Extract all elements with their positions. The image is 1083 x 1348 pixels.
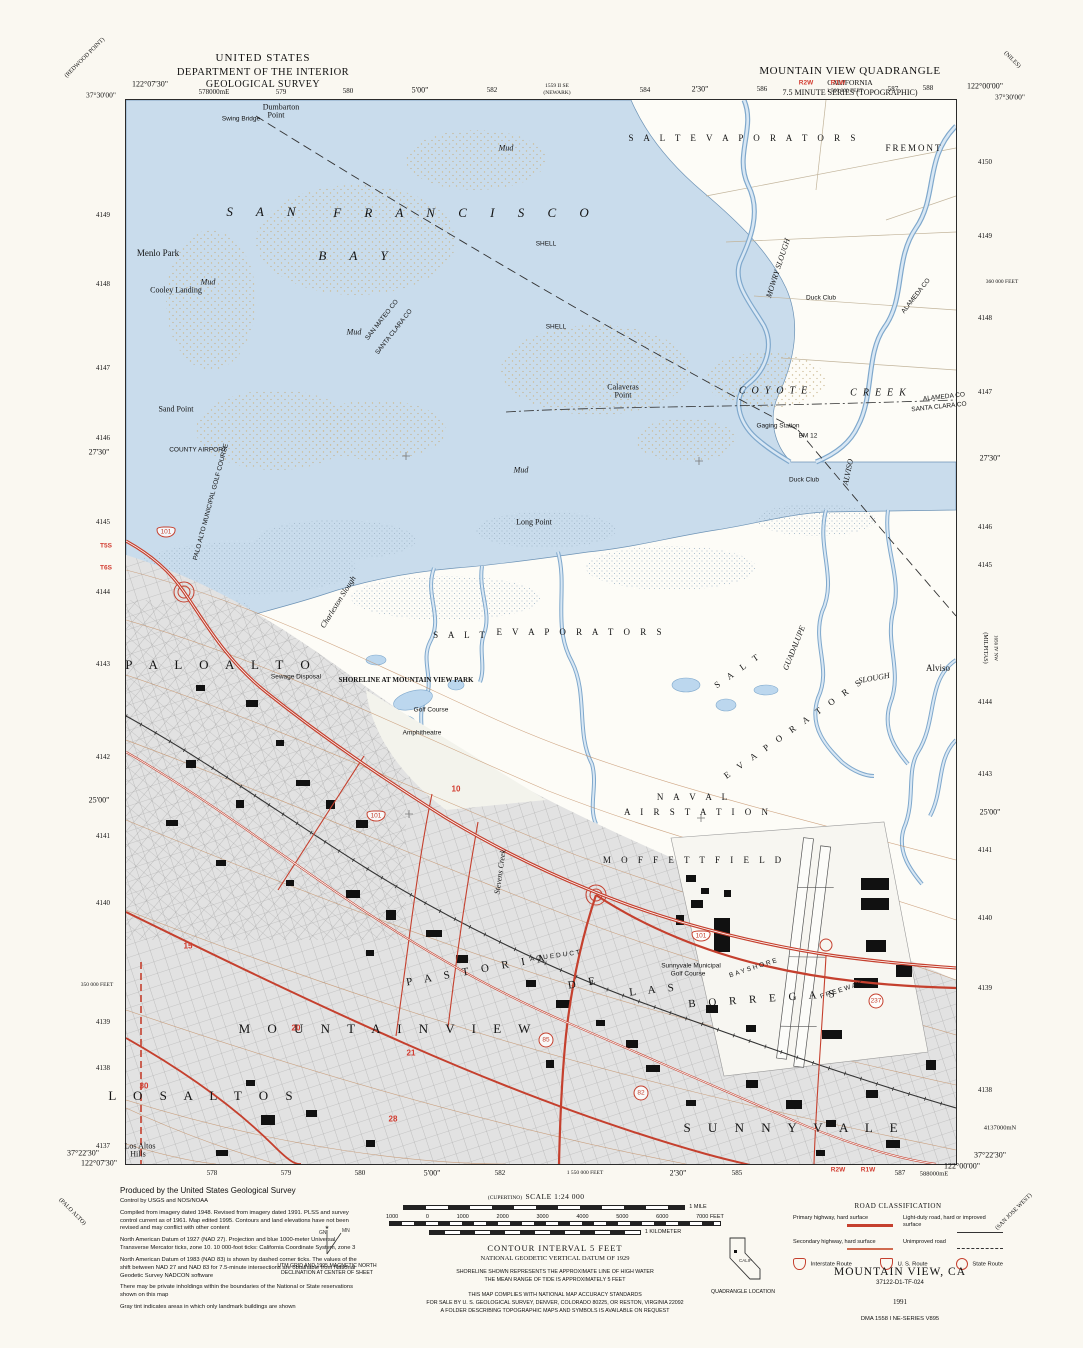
margin-label: 4138 [978, 1086, 992, 1094]
margin-label: 4139 [96, 1018, 110, 1026]
folder-note: A FOLDER DESCRIBING TOPOGRAPHIC MAPS AND… [385, 1308, 725, 1316]
map-label: S A L T [433, 630, 489, 640]
margin-label: 4140 [978, 914, 992, 922]
margin-label: 4140 [96, 899, 110, 907]
map-label: E V A P O R A T O R S [722, 675, 866, 780]
map-label: Hills [130, 1150, 146, 1159]
header-line1: UNITED STATES [128, 52, 398, 66]
map-label: Alviso [926, 663, 950, 673]
header-line3: GEOLOGICAL SURVEY [128, 79, 398, 92]
credit-note: There may be private inholdings within t… [120, 1284, 360, 1300]
section-number: 10 [452, 785, 461, 794]
margin-label: 4143 [978, 770, 992, 778]
margin-label: 588000mE [920, 1171, 949, 1178]
margin-label: 122°00'00" [944, 1162, 980, 1171]
margin-label: 582 [487, 86, 498, 94]
feet-tick-label: 7000 FEET [696, 1214, 724, 1220]
mile-scale-bar [403, 1205, 685, 1210]
quadrangle-location-label: QUADRANGLE LOCATION [698, 1289, 788, 1295]
margin-label: 4142 [96, 753, 110, 761]
feet-tick-labels: 100001000200030004000500060007000 FEET [386, 1214, 724, 1220]
declination-diagram: ★ GN MN UTM GRID AND 1995 MAGNETIC NORTH… [272, 1224, 382, 1278]
margin-label: 4144 [978, 698, 992, 706]
margin-label: 579 [281, 1169, 292, 1177]
margin-label: 4149 [96, 211, 110, 219]
map-label: Cooley Landing [150, 286, 202, 295]
map-label: Point [615, 391, 632, 400]
margin-label: 37°30'00" [995, 93, 1025, 102]
feet-tick-label: 5000 [616, 1214, 628, 1220]
section-number: 30 [140, 1082, 149, 1091]
margin-label: 588 [923, 84, 934, 92]
margin-label: 4147 [978, 388, 992, 396]
margin-label: 580 [343, 87, 354, 95]
route-shield: 85 [539, 1033, 554, 1048]
map-label: M O F F E T T F I E L D [603, 855, 785, 865]
map-label: GUADALUPE [781, 624, 807, 671]
section-number: 20 [292, 1024, 301, 1033]
legend-unimproved-road: Unimproved road [903, 1239, 1003, 1250]
mn-label: MN [342, 1228, 350, 1234]
declination-caption-2: DECLINATION AT CENTER OF SHEET [272, 1270, 382, 1277]
map-label: Duck Club [806, 295, 836, 302]
map-label: Menlo Park [137, 248, 179, 258]
quadrangle-location: CALIF QUADRANGLE LOCATION [698, 1236, 788, 1295]
feet-tick-label: 6000 [656, 1214, 668, 1220]
light-road-sample [957, 1232, 1003, 1233]
map-label: Sunnyvale Municipal [661, 963, 721, 970]
margin-label: 578000mE [199, 88, 230, 96]
margin-label: 4148 [978, 314, 992, 322]
margin-label: 122°07'30" [132, 80, 168, 89]
map-label: MOWRY SLOUGH [764, 237, 792, 299]
margin-label: 582 [495, 1169, 506, 1177]
map-label: S U N N Y V A L E [683, 1120, 904, 1136]
map-label: Golf Course [414, 707, 449, 714]
map-label: Long Point [516, 518, 552, 527]
margin-label: R2W [799, 80, 813, 87]
margin-label: R2W [831, 1167, 845, 1174]
margin-label: 122°00'00" [967, 82, 1003, 91]
map-name: MOUNTAIN VIEW, CA [805, 1266, 995, 1278]
margin-label: R1W [861, 1167, 875, 1174]
margin-label: 584 [640, 86, 651, 94]
map-label: BAYSHORE [728, 957, 779, 980]
map-label: Sand Point [159, 405, 194, 414]
margin-label: 4144 [96, 588, 110, 596]
map-label: Mud [514, 466, 529, 475]
margin-label: T5S [100, 543, 112, 550]
margin-label: 585 [732, 1169, 743, 1177]
margin-label: 1 550 000 FEET [567, 1170, 604, 1176]
map-label: AQUEDUCT [530, 949, 583, 963]
map-sheet: UNITED STATES DEPARTMENT OF THE INTERIOR… [0, 0, 1083, 1348]
map-label: M O U N T A I N V I E W [239, 1021, 538, 1037]
margin-label: 4145 [96, 518, 110, 526]
map-label: Gaging Station [756, 423, 799, 430]
map-label: Stevens Creek [492, 849, 507, 895]
margin-label: 37°30'00" [86, 91, 116, 100]
map-label: L O S A L T O S [108, 1088, 299, 1104]
map-label: SHORELINE AT MOUNTAIN VIEW PARK [339, 676, 474, 684]
feet-tick-label: 0 [426, 1214, 429, 1220]
map-year: 1991 [805, 1298, 995, 1306]
margin-label: 586 [757, 85, 768, 93]
margin-label: (NEWARK) [543, 90, 570, 96]
margin-label: 1 560 000 FEET [827, 88, 864, 94]
california-outline-icon: CALIF [723, 1236, 763, 1282]
margin-label: 5'00" [412, 86, 429, 95]
secondary-road-sample [847, 1248, 893, 1250]
margin-label: 4141 [978, 846, 992, 854]
quad-title-state: CALIFORNIA [700, 78, 1000, 88]
quad-title-name: MOUNTAIN VIEW QUADRANGLE [700, 64, 1000, 78]
km-scale-bar [429, 1230, 641, 1235]
map-label: CREEK [850, 388, 912, 399]
map-label: Mud [201, 278, 216, 287]
credit-note: Gray tint indicates areas in which only … [120, 1304, 360, 1312]
margin-label: 587 [895, 1169, 906, 1177]
legend-secondary-highway: Secondary highway, hard surface [793, 1239, 893, 1250]
margin-label: 580 [355, 1169, 366, 1177]
margin-label: 4138 [96, 1064, 110, 1072]
road-classification-title: ROAD CLASSIFICATION [793, 1202, 1003, 1210]
primary-road-sample [847, 1224, 893, 1227]
map-label: D E [567, 974, 601, 991]
route-shield: 101 [367, 811, 386, 822]
margin-label: 37°22'30" [67, 1149, 99, 1158]
margin-label: 4148 [96, 280, 110, 288]
route-shield: 82 [634, 1086, 649, 1101]
map-label: SANTA CLARA CO [911, 401, 967, 414]
feet-tick-label: 4000 [576, 1214, 588, 1220]
vertical-datum: NATIONAL GEODETIC VERTICAL DATUM OF 1929 [385, 1255, 725, 1262]
map-label: SLOUGH [858, 671, 891, 685]
map-label: SHELL [546, 324, 567, 331]
map-label: N A V A L [657, 792, 731, 802]
section-number: 15 [184, 942, 193, 951]
feet-tick-label: 1000 [386, 1214, 398, 1220]
margin-label: T6S [100, 565, 112, 572]
margin-label: (NILES) [1002, 50, 1021, 69]
margin-label: 4137000mN [984, 1125, 1017, 1132]
map-id-block: MOUNTAIN VIEW, CA 37122-D1-TF-024 1991 D… [805, 1266, 995, 1322]
map-label: SHELL [536, 241, 557, 248]
map-label: COUNTY AIRPORT [169, 447, 227, 454]
margin-label: 4147 [96, 364, 110, 372]
map-label: Point [268, 111, 285, 120]
map-label-layer: DumbartonPointSwing BridgeS A NF R A N C… [126, 100, 956, 1164]
section-number: 21 [407, 1049, 416, 1058]
map-label: Golf Course [671, 971, 706, 978]
unimproved-road-sample [957, 1248, 1003, 1249]
credit-note: Control by USGS and NOS/NOAA [120, 1198, 360, 1206]
map-label: S A L T [712, 650, 763, 690]
margin-label: 4139 [978, 984, 992, 992]
margin-label: 2'30" [670, 1169, 687, 1178]
map-label: B A Y [318, 248, 397, 264]
map-label: Amphitheatre [403, 730, 442, 737]
km-bar-row: 1 KILOMETER [385, 1229, 725, 1235]
margin-label: (REDWOOD POINT) [64, 37, 106, 79]
margin-label: 1559 II SE [545, 83, 569, 89]
margin-label: 579 [276, 88, 287, 96]
scale-block: SCALE 1:24 000 1 MILE 100001000200030004… [385, 1192, 725, 1316]
mile-label: 1 MILE [689, 1204, 706, 1210]
feet-tick-label: 1000 [457, 1214, 469, 1220]
margin-label: 4146 [96, 434, 110, 442]
map-label: P A L O A L T O [125, 657, 317, 673]
map-label: Swing Bridge [222, 116, 260, 123]
margin-label: 5'00" [424, 1169, 441, 1178]
legend-light-duty-road: Light-duty road, hard or improved surfac… [903, 1215, 1003, 1233]
map-label: Charleston Slough [318, 574, 357, 629]
gn-label: GN [319, 1230, 327, 1236]
shoreline-note-2: THE MEAN RANGE OF TIDE IS APPROXIMATELY … [385, 1277, 725, 1285]
margin-label: 587 [888, 85, 899, 93]
margin-label: (PALO ALTO) [57, 1197, 86, 1226]
margin-label: 37°22'30" [974, 1151, 1006, 1160]
map-label: BM 12 [799, 433, 818, 440]
map-reference-code: 37122-D1-TF-024 [805, 1280, 995, 1286]
margin-label: 27'30" [980, 454, 1001, 463]
map-label: A I R S T A T I O N [624, 807, 772, 817]
margin-label: 578 [207, 1169, 218, 1177]
margin-label: 350 000 FEET [81, 982, 113, 988]
margin-label: 4150 [978, 158, 992, 166]
map-label: F R A N C I S C O [333, 205, 599, 221]
route-shield: 101 [692, 931, 711, 942]
map-canvas[interactable]: DumbartonPointSwing BridgeS A NF R A N C… [125, 99, 957, 1165]
legend-primary-highway: Primary highway, hard surface [793, 1215, 893, 1233]
map-label: Duck Club [789, 477, 819, 484]
map-label: S A L T E V A P O R A T O R S [629, 133, 860, 143]
map-label: Mud [499, 144, 514, 153]
contour-interval: CONTOUR INTERVAL 5 FEET [385, 1243, 725, 1253]
scale-title: SCALE 1:24 000 [385, 1192, 725, 1201]
map-label: ALVISO [841, 458, 855, 486]
header-line2: DEPARTMENT OF THE INTERIOR [128, 66, 398, 79]
shoreline-note-1: SHORELINE SHOWN REPRESENTS THE APPROXIMA… [385, 1269, 725, 1277]
route-shield: 237 [869, 994, 884, 1009]
map-label: COYOTE [739, 386, 813, 397]
margin-label: 25'00" [980, 808, 1001, 817]
map-label: FREMONT [885, 143, 942, 153]
map-label: S A N [226, 204, 305, 220]
margin-label: 4149 [978, 232, 992, 240]
margin-label: 25'00" [89, 796, 110, 805]
feet-tick-label: 2000 [497, 1214, 509, 1220]
mile-bar-row: 1 MILE [385, 1204, 725, 1210]
compliance-note: THIS MAP COMPLIES WITH NATIONAL MAP ACCU… [385, 1292, 725, 1300]
map-label: E V A P O R A T O R S [496, 627, 665, 637]
margin-label: 4141 [96, 832, 110, 840]
map-series-code: DMA 1558 I NE-SERIES V895 [805, 1316, 995, 1322]
margin-label: R1W [831, 80, 845, 87]
map-label: PALO ALTO MUNICIPAL GOLF COURSE [192, 443, 230, 561]
sale-note: FOR SALE BY U. S. GEOLOGICAL SURVEY, DEN… [385, 1300, 725, 1308]
map-label: B O R R E G A S [688, 988, 840, 1011]
route-shield: 101 [157, 527, 176, 538]
feet-scale-bar [389, 1221, 721, 1226]
margin-label: 4146 [978, 523, 992, 531]
map-label: Mud [347, 328, 362, 337]
declination-caption-1: UTM GRID AND 1995 MAGNETIC NORTH [272, 1263, 382, 1270]
margin-label: 4145 [978, 561, 992, 569]
margin-label: 1656 IV NW [993, 635, 998, 661]
margin-label: 2'30" [692, 85, 709, 94]
margin-label: 122°07'30" [81, 1159, 117, 1168]
produced-by: Produced by the United States Geological… [120, 1186, 360, 1195]
map-label: ALAMEDA CO [900, 277, 932, 315]
section-number: 28 [389, 1115, 398, 1124]
road-classification: ROAD CLASSIFICATION Primary highway, har… [793, 1202, 1003, 1270]
margin-label: 27'30" [89, 448, 110, 457]
km-label: 1 KILOMETER [645, 1229, 681, 1235]
margin-label: 4143 [96, 660, 110, 668]
margin-label: 360 000 FEET [986, 279, 1018, 285]
map-label: L A S [629, 981, 680, 998]
margin-label: (CUPERTINO) [488, 1195, 522, 1201]
agency-header: UNITED STATES DEPARTMENT OF THE INTERIOR… [128, 52, 398, 91]
calif-label: CALIF [739, 1258, 752, 1263]
feet-bar-row [385, 1221, 725, 1226]
feet-tick-label: 3000 [536, 1214, 548, 1220]
margin-label: (MILPITAS) [982, 632, 988, 663]
map-label: Sewage Disposal [271, 674, 321, 681]
declination-art: ★ GN MN [301, 1224, 353, 1258]
